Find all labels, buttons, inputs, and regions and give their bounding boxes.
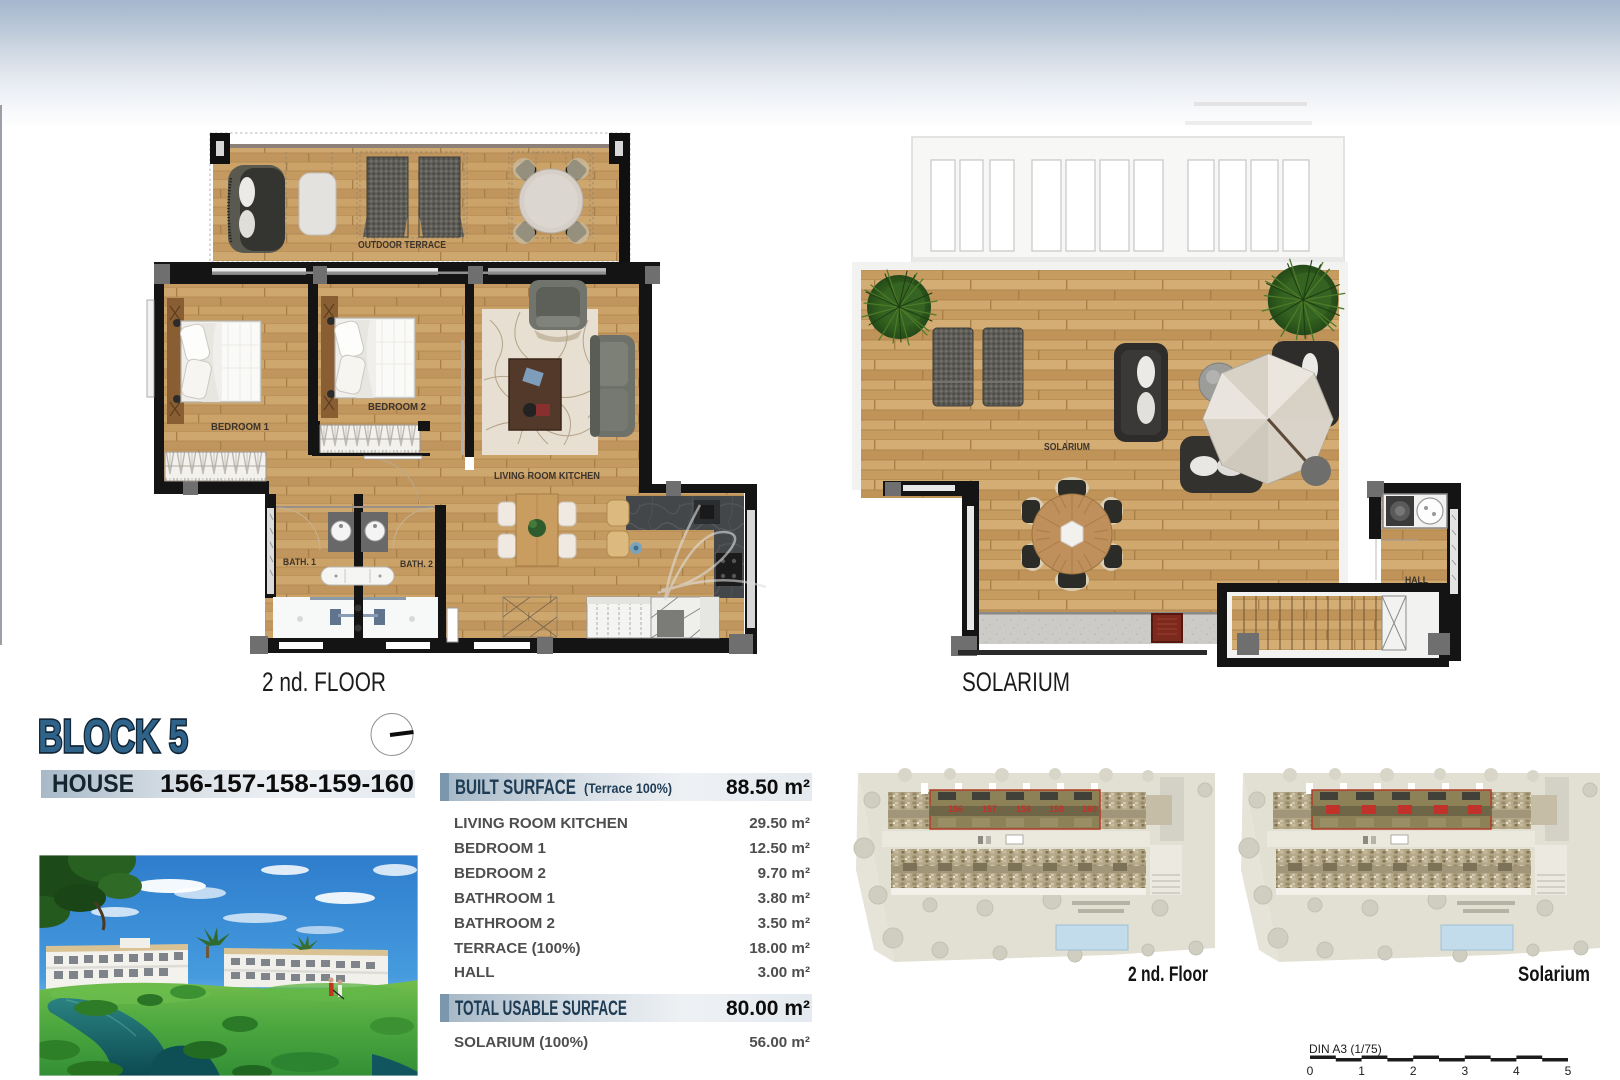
svg-text:0: 0 <box>1307 1064 1314 1078</box>
svg-text:12.50 m²: 12.50 m² <box>749 840 810 857</box>
svg-text:BEDROOM 2: BEDROOM 2 <box>368 402 426 413</box>
svg-text:BEDROOM 2: BEDROOM 2 <box>454 865 546 882</box>
svg-text:HALL: HALL <box>454 964 495 981</box>
svg-text:4: 4 <box>1513 1064 1520 1078</box>
svg-text:3.00 m²: 3.00 m² <box>758 964 810 981</box>
svg-text:BATH. 2: BATH. 2 <box>400 559 433 570</box>
svg-text:TERRACE (100%): TERRACE (100%) <box>454 940 581 957</box>
svg-text:2 nd. FLOOR: 2 nd. FLOOR <box>262 667 386 697</box>
svg-text:BLOCK 5: BLOCK 5 <box>38 710 188 762</box>
svg-text:2: 2 <box>1410 1064 1417 1078</box>
svg-text:80.00 m²: 80.00 m² <box>726 997 810 1020</box>
svg-text:BEDROOM 1: BEDROOM 1 <box>454 840 547 857</box>
svg-text:157: 157 <box>982 804 997 814</box>
svg-text:3.50 m²: 3.50 m² <box>758 915 810 932</box>
svg-text:18.00 m²: 18.00 m² <box>749 940 810 957</box>
svg-text:160: 160 <box>1082 804 1097 814</box>
svg-text:HOUSE: HOUSE <box>52 770 134 798</box>
svg-text:DIN A3 (1/75): DIN A3 (1/75) <box>1309 1042 1382 1056</box>
svg-text:156: 156 <box>948 804 963 814</box>
svg-text:29.50 m²: 29.50 m² <box>749 815 810 832</box>
svg-text:BATH. 1: BATH. 1 <box>283 557 317 568</box>
svg-text:BATHROOM 2: BATHROOM 2 <box>454 915 555 932</box>
svg-text:OUTDOOR TERRACE: OUTDOOR TERRACE <box>358 240 446 251</box>
svg-text:(Terrace 100%): (Terrace 100%) <box>584 780 672 796</box>
svg-text:SOLARIUM: SOLARIUM <box>962 667 1070 697</box>
svg-text:156-157-158-159-160: 156-157-158-159-160 <box>160 770 414 798</box>
svg-text:TOTAL USABLE SURFACE: TOTAL USABLE SURFACE <box>455 997 627 1020</box>
svg-text:5: 5 <box>1565 1064 1572 1078</box>
svg-text:56.00 m²: 56.00 m² <box>749 1034 810 1051</box>
svg-text:LIVING ROOM KITCHEN: LIVING ROOM KITCHEN <box>494 470 600 482</box>
svg-text:Solarium: Solarium <box>1518 963 1590 986</box>
svg-text:LIVING ROOM KITCHEN: LIVING ROOM KITCHEN <box>454 815 628 832</box>
svg-text:159: 159 <box>1049 804 1064 814</box>
svg-text:3: 3 <box>1461 1064 1468 1078</box>
svg-text:BEDROOM 1: BEDROOM 1 <box>211 422 269 433</box>
svg-text:9.70 m²: 9.70 m² <box>758 865 810 882</box>
svg-text:3.80 m²: 3.80 m² <box>758 890 810 907</box>
svg-text:1: 1 <box>1358 1064 1365 1078</box>
svg-text:SOLARIUM (100%): SOLARIUM (100%) <box>454 1034 588 1051</box>
svg-text:88.50 m²: 88.50 m² <box>726 776 810 799</box>
svg-text:2 nd. Floor: 2 nd. Floor <box>1128 963 1208 986</box>
svg-text:BUILT SURFACE: BUILT SURFACE <box>455 776 576 799</box>
svg-text:SOLARIUM: SOLARIUM <box>1044 442 1090 453</box>
svg-text:BATHROOM 1: BATHROOM 1 <box>454 890 556 907</box>
svg-text:158: 158 <box>1016 804 1031 814</box>
